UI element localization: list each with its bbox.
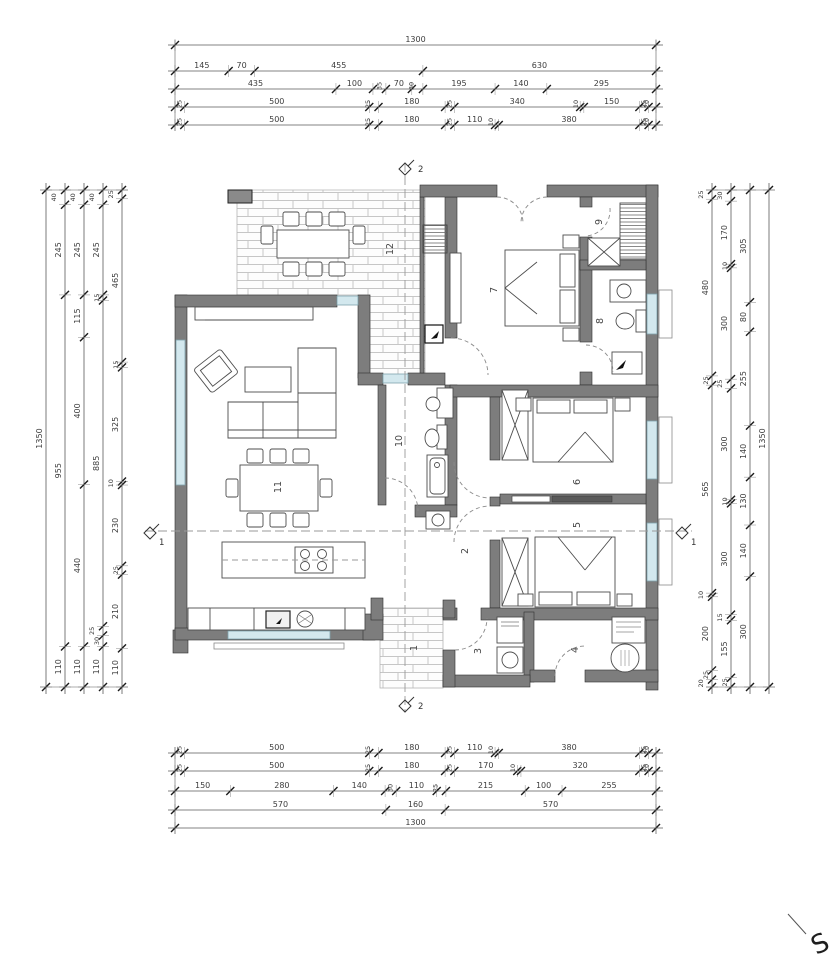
dimension-label: 110: [409, 781, 424, 790]
dimension-label: 100: [536, 781, 551, 790]
dimension-label: 100: [347, 79, 362, 88]
compass-label: S: [807, 927, 835, 960]
dimension-label: 500: [269, 743, 284, 752]
dimension-label: 245: [73, 242, 82, 257]
room-number: 6: [572, 479, 583, 485]
dimension-label: 480: [701, 280, 710, 295]
sill-bed6: [659, 417, 672, 483]
dimension-label: 300: [720, 316, 729, 331]
dimension-label: 25: [446, 100, 454, 108]
dimension-label: 300: [720, 551, 729, 566]
room-number: 10: [394, 435, 405, 447]
dimension-label: 25: [697, 190, 705, 198]
drawing-sheet: 1300145704556304351003570301951402952550…: [0, 0, 839, 960]
dimension-label: 1300: [405, 35, 425, 44]
sideboard: [195, 307, 313, 320]
dimension-label: 140: [739, 444, 748, 459]
room-number: 3: [473, 648, 484, 654]
dimension-label: 170: [720, 225, 729, 240]
dimension-label: 110: [54, 659, 63, 674]
dimension-label: 140: [352, 781, 367, 790]
dimension-label: 435: [248, 79, 263, 88]
dimension-label: 25: [112, 566, 120, 574]
room-number: 5: [572, 522, 583, 528]
bed-room7: [450, 235, 579, 341]
dimension-label: 500: [269, 97, 284, 106]
sill-living-bottom: [214, 643, 344, 649]
door-french-left: [497, 197, 523, 223]
dimension-label: 110: [73, 659, 82, 674]
dimension-label: 300: [739, 624, 748, 639]
dimension-label: 10: [697, 591, 705, 599]
dimension-label: 20: [642, 764, 650, 772]
dimension-label: 400: [73, 403, 82, 418]
pocket-door-slot: [512, 496, 550, 502]
dimension-label: 215: [478, 781, 493, 790]
bath8-fixtures: [610, 280, 646, 374]
armchair: [193, 349, 238, 394]
stove: [425, 325, 443, 343]
dimension-label: 1350: [758, 428, 767, 448]
wall-bed7-closet-c: [580, 372, 592, 385]
dimension-label: 320: [573, 761, 588, 770]
dimension-label: 155: [720, 641, 729, 656]
door-bath10: [385, 478, 418, 511]
compass-needle: [788, 914, 806, 934]
wall-bath10-top: [408, 373, 445, 385]
dimension-label: 10: [487, 118, 495, 126]
dimension-label: 885: [92, 456, 101, 471]
nightstand: [615, 398, 630, 411]
dimension-label: 295: [594, 79, 609, 88]
dimension-label: 130: [739, 493, 748, 508]
floor-plan-canvas: 1300145704556304351003570301951402952550…: [0, 0, 839, 960]
dimension-label: 10: [721, 497, 729, 505]
dimension-label: 30: [716, 191, 724, 199]
dimension-label: 230: [111, 518, 120, 533]
nightstand: [617, 594, 632, 606]
closet-room9: [588, 203, 646, 266]
dimension-label: 20: [642, 100, 650, 108]
section-marker-label: 2: [418, 165, 423, 175]
room-number: 2: [460, 548, 471, 554]
dimension-label: 200: [701, 626, 710, 641]
room-number: 8: [595, 318, 606, 324]
dimension-label: 500: [269, 761, 284, 770]
section-marker-label: 1: [159, 538, 164, 548]
dimension-label: 255: [739, 371, 748, 386]
door-french-right: [521, 197, 547, 223]
nightstand: [518, 594, 533, 606]
dimension-label: 20: [642, 746, 650, 754]
dimension-label: 340: [510, 97, 525, 106]
dimension-label: 325: [111, 417, 120, 432]
dimension-label: 25: [446, 746, 454, 754]
radiator: [423, 225, 447, 253]
dimension-label: 115: [73, 308, 82, 323]
dimension-label: 25: [364, 746, 372, 754]
wall-living-right-upper: [358, 295, 370, 378]
door-bed5: [454, 506, 490, 542]
dimension-label: 305: [739, 239, 748, 254]
door-bed6: [454, 462, 490, 498]
dimension-label: 15: [93, 294, 101, 302]
dimension-label: 25: [702, 376, 710, 384]
dimension-label: 25: [716, 380, 724, 388]
dimension-label: 465: [111, 273, 120, 288]
room-number: 4: [570, 647, 581, 653]
dimension-label: 25: [176, 118, 184, 126]
wall-bed56-joint: [490, 497, 500, 506]
window-bath8: [647, 294, 657, 334]
dimension-label: 955: [54, 463, 63, 478]
wall-bed7-closet-a: [580, 197, 592, 207]
wall-entry-threshold-side: [358, 373, 383, 385]
dimension-label: 25: [364, 118, 372, 126]
dimension-label: 35: [375, 82, 383, 90]
wall-bath10-left: [378, 385, 386, 505]
vent-unit: [612, 617, 645, 643]
room-number: 11: [273, 481, 284, 493]
dimension-label: 10: [107, 479, 115, 487]
window-living-left: [176, 340, 185, 485]
entry-door-glazed: [383, 374, 408, 383]
dimension-label: 25: [446, 118, 454, 126]
door-bath8: [586, 345, 613, 372]
dimension-label: 170: [478, 761, 493, 770]
dimension-label: 10: [572, 100, 580, 108]
dimension-label: 30: [407, 82, 415, 90]
wall-living-top: [175, 295, 337, 307]
dimension-label: 1350: [35, 428, 44, 448]
dimension-label: 255: [601, 781, 616, 790]
kitchen-sink: [266, 611, 290, 628]
dimension-label: 110: [111, 660, 120, 675]
dimension-label: 180: [404, 743, 419, 752]
dimension-label: 15: [716, 613, 724, 621]
section-marker-label: 1: [691, 538, 696, 548]
dresser: [450, 253, 461, 323]
window-living-top: [337, 296, 358, 305]
sofa: [228, 348, 336, 438]
wall-under-bed7: [450, 385, 658, 397]
dimension-label: 25: [176, 764, 184, 772]
bed-room5: [502, 537, 632, 607]
room-number: 7: [489, 287, 500, 293]
nightstand: [516, 398, 531, 411]
dimension-label: 25: [364, 764, 372, 772]
dimension-label: 245: [92, 242, 101, 257]
room-number: 12: [385, 243, 396, 255]
dimension-label: 145: [194, 61, 209, 70]
dimension-label: 570: [273, 800, 288, 809]
dimension-label: 110: [467, 743, 482, 752]
dimension-label: 300: [720, 436, 729, 451]
wall-room3-bottom: [443, 675, 530, 687]
kitchen-island: [222, 542, 365, 578]
kitchen-counter: [188, 608, 365, 630]
wall-vestibule-left: [420, 197, 424, 373]
dimension-label: 160: [408, 800, 423, 809]
dimension-label: 565: [701, 481, 710, 496]
dimension-label: 180: [404, 761, 419, 770]
nightstand: [563, 235, 579, 248]
window-bed5: [647, 523, 657, 581]
dimension-label: 140: [739, 543, 748, 558]
dimension-label: 40: [88, 193, 96, 201]
dimension-label: 500: [269, 115, 284, 124]
dimension-label: 210: [111, 604, 120, 619]
dimension-label: 20: [642, 118, 650, 126]
dimension-label: 630: [532, 61, 547, 70]
dimension-label: 440: [73, 558, 82, 573]
dimension-label: 70: [237, 61, 247, 70]
wall-north-a: [420, 185, 497, 197]
dimension-label: 10: [721, 262, 729, 270]
dimension-label: 80: [739, 312, 748, 322]
dimension-label: 280: [274, 781, 289, 790]
door-bed7: [451, 338, 488, 375]
coffee-table: [245, 367, 291, 392]
door-front: [455, 618, 487, 650]
dimension-label: 25: [702, 671, 710, 679]
room-number: 9: [594, 219, 605, 225]
dimension-label: 10: [509, 764, 517, 772]
wall-room4-bottom-a: [530, 670, 555, 682]
nightstand: [563, 328, 579, 341]
dimension-label: 30: [93, 637, 101, 645]
dimension-label: 195: [451, 79, 466, 88]
dimension-label: 25: [446, 764, 454, 772]
dimension-label: 180: [404, 115, 419, 124]
pocket-door-panel: [552, 496, 612, 502]
dimension-label: 150: [195, 781, 210, 790]
dimension-label: 380: [561, 743, 576, 752]
dimension-label: 25: [176, 746, 184, 754]
dimension-label: 180: [404, 97, 419, 106]
terrace-pillar: [228, 190, 252, 203]
dimension-label: 25: [364, 100, 372, 108]
dimension-label: 245: [54, 242, 63, 257]
wall-bed5-left: [490, 540, 500, 608]
dimension-label: 70: [394, 79, 404, 88]
dimension-label: 455: [331, 61, 346, 70]
sill-bath8: [659, 290, 672, 338]
dimension-label: 30: [387, 784, 395, 792]
dimension-label: 570: [543, 800, 558, 809]
compass: S: [788, 914, 834, 960]
window-living-bottom: [228, 631, 330, 639]
dimension-label: 110: [92, 659, 101, 674]
wall-bed6-left: [490, 397, 500, 460]
dimension-label: 25: [107, 190, 115, 198]
dimension-label: 25: [721, 678, 729, 686]
dimension-label: 40: [69, 193, 77, 201]
dimension-label: 20: [697, 679, 705, 687]
sill-bed5: [659, 519, 672, 585]
laundry-appliances: [497, 617, 523, 673]
room-number: 1: [409, 645, 420, 651]
dimension-label: 110: [467, 115, 482, 124]
dimension-label: 25: [431, 784, 439, 792]
dimension-label: 1300: [405, 818, 425, 827]
dimension-label: 140: [513, 79, 528, 88]
dimension-label: 150: [604, 97, 619, 106]
section-marker-label: 2: [418, 702, 423, 712]
dimension-label: 15: [112, 361, 120, 369]
wall-entry-b: [443, 650, 455, 687]
wall-entry-a: [443, 600, 455, 618]
dimension-label: 380: [561, 115, 576, 124]
dimension-label: 25: [88, 627, 96, 635]
wall-north-b: [547, 185, 658, 197]
dimension-label: 25: [176, 100, 184, 108]
tech-equipment: [611, 617, 645, 672]
wall-porch-left: [371, 598, 383, 620]
dimension-label: 10: [487, 746, 495, 754]
window-bed6: [647, 421, 657, 479]
dimension-label: 40: [50, 193, 58, 201]
bed-room6: [502, 390, 630, 462]
